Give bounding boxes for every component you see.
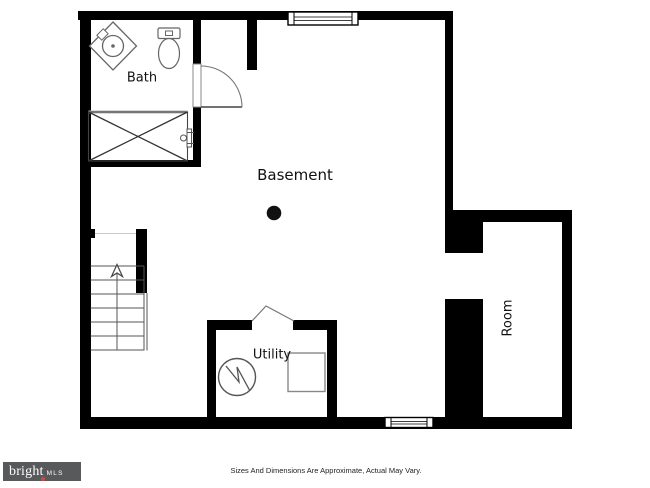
utility-door-icon — [252, 306, 294, 321]
floor-plan-page: Bath Basement Utility Room bright MLS Si… — [0, 0, 650, 488]
wall-room-left-lower — [445, 299, 483, 417]
bottom-window-icon — [385, 418, 433, 428]
toilet-icon — [158, 28, 180, 69]
wall-room-left-upper — [445, 222, 483, 253]
water-heater-icon — [219, 359, 256, 396]
corner-sink-icon — [90, 22, 137, 70]
shower-valve-icon — [181, 129, 195, 147]
wall-vestibule-stub — [247, 20, 257, 70]
brightmls-logo-suffix: MLS — [47, 464, 64, 483]
support-column-icon — [267, 206, 282, 221]
wall-left — [80, 11, 91, 429]
wall-bath-right-lower — [193, 107, 201, 167]
wall-bottom — [80, 417, 571, 429]
logo-flame-icon — [41, 477, 45, 481]
wall-room-top — [445, 210, 571, 222]
wall-basement-right — [445, 11, 453, 222]
wall-utility-top-left — [207, 320, 252, 330]
wall-room-right — [562, 210, 572, 429]
wall-bath-right-upper — [193, 20, 201, 65]
wall-stairwell-right — [136, 229, 147, 293]
furnace-icon — [288, 353, 325, 392]
brightmls-logo: bright MLS — [3, 462, 81, 481]
wall-utility-left — [207, 320, 216, 417]
brightmls-logo-brand: bright — [9, 462, 44, 481]
wall-top — [78, 11, 453, 20]
disclaimer-text: Sizes And Dimensions Are Approximate, Ac… — [176, 466, 476, 475]
wall-stair-jamb — [90, 229, 95, 238]
bath-door-icon — [193, 64, 242, 107]
floor-plan-drawing — [0, 0, 650, 488]
shower-icon — [89, 112, 195, 161]
top-window-icon — [288, 12, 358, 25]
wall-utility-right — [327, 320, 337, 417]
